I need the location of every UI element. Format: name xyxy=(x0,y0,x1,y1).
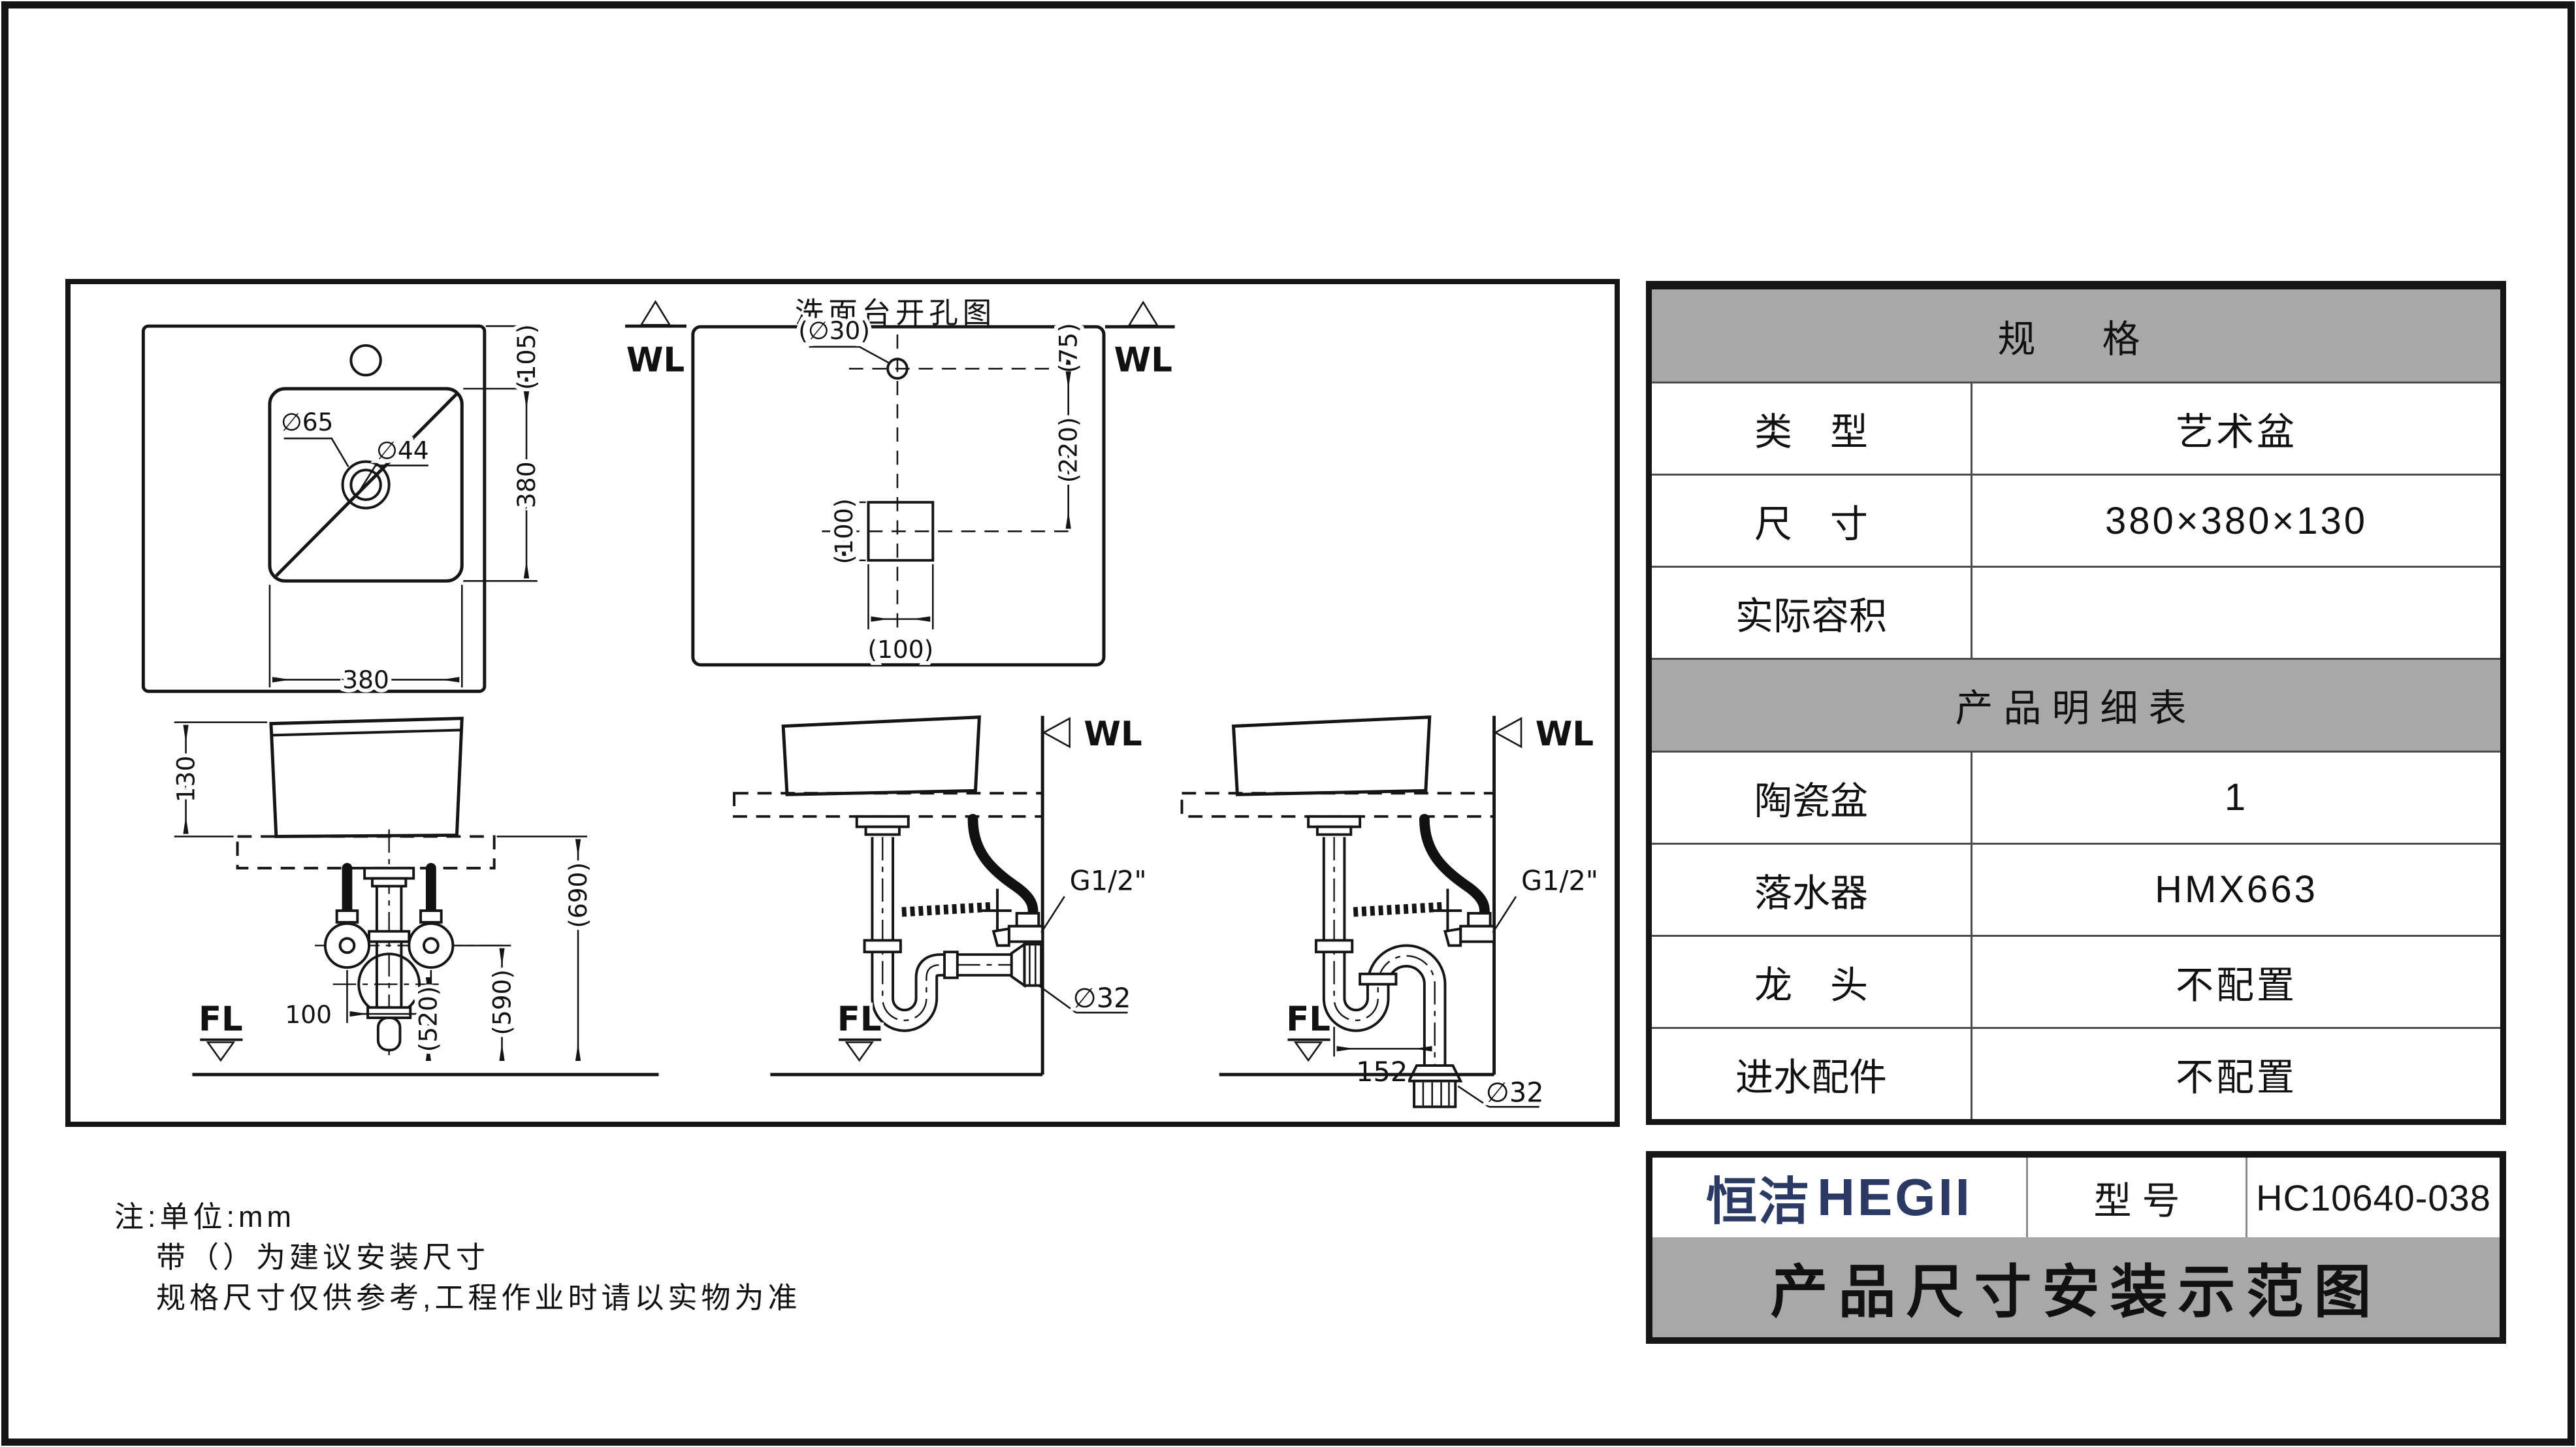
dim-basin-width-label: 380 xyxy=(342,665,389,694)
dim-offset-mid-label: (220) xyxy=(1054,417,1083,483)
dim-520-label: (520) xyxy=(414,986,443,1052)
drain-inner-dia-label: ∅44 xyxy=(376,436,428,465)
front-view-drawing: 130 xyxy=(171,719,658,1075)
dim-basin-height-label: 130 xyxy=(171,756,200,803)
wl-triangle-icon xyxy=(641,302,669,325)
fl-triangle-icon xyxy=(846,1043,873,1061)
wall-angle-valve xyxy=(1460,926,1494,942)
model-label: 型 号 xyxy=(2026,1158,2246,1237)
dim-cutout-height-label: (100) xyxy=(829,498,858,564)
wl-triangle-icon xyxy=(1129,302,1157,326)
angle-valve-right xyxy=(409,924,453,967)
wall-flange xyxy=(1012,944,1025,985)
floor-drain-wl-label: WL xyxy=(1536,715,1594,754)
installation-drawing-panel: WL ∅65 ∅44 (105) 380 xyxy=(65,279,1620,1127)
spec-row-value xyxy=(1971,566,2500,658)
fl-triangle-icon xyxy=(1295,1043,1321,1061)
spec-table-title: 规 格 xyxy=(1652,289,2500,382)
spec-row-label: 类 型 xyxy=(1652,382,1971,474)
detail-row-value: 1 xyxy=(1971,751,2500,843)
sheet-title: 产品尺寸安装示范图 xyxy=(1652,1237,2500,1337)
wall-drain-thread-label: G1/2" xyxy=(1070,864,1147,896)
wl-triangle-icon xyxy=(1044,719,1070,747)
spec-table: 规 格 类 型 艺术盆 尺 寸 380×380×130 实际容积 产品明细表 陶… xyxy=(1646,281,2506,1125)
spec-row-value: 380×380×130 xyxy=(1971,474,2500,566)
angle-valve-left xyxy=(325,924,369,967)
faucet-hole-dia-label: (∅30) xyxy=(798,316,870,345)
detail-row-label: 陶瓷盆 xyxy=(1652,751,1971,843)
dim-590-label: (590) xyxy=(487,969,516,1035)
dim-valve-span-label: 100 xyxy=(285,1000,332,1029)
spec-row-value: 艺术盆 xyxy=(1971,382,2500,474)
page: WL ∅65 ∅44 (105) 380 xyxy=(0,0,2576,1447)
detail-row-label: 落水器 xyxy=(1652,843,1971,935)
note-line-2: 带（）为建议安装尺寸 xyxy=(114,1237,1094,1278)
supply-hose xyxy=(973,819,1033,919)
dim-690-label: (690) xyxy=(564,862,592,928)
fl-triangle-icon xyxy=(208,1043,234,1061)
model-value: HC10640-038 xyxy=(2246,1158,2500,1237)
wall-drain-wl-label: WL xyxy=(1084,715,1142,754)
top-view-drawing: WL ∅65 ∅44 (105) 380 xyxy=(143,302,686,694)
spec-row-label: 实际容积 xyxy=(1652,566,1971,658)
drain-tailpiece xyxy=(378,1018,400,1050)
detail-table-title: 产品明细表 xyxy=(1652,658,2500,750)
faucet-hole xyxy=(351,346,380,375)
floor-drain-dia-label: ∅32 xyxy=(1486,1076,1544,1108)
pop-up-rod xyxy=(1353,907,1443,912)
dim-faucet-offset-label: (105) xyxy=(512,324,541,390)
detail-row-value: 不配置 xyxy=(1971,1027,2500,1119)
wall-drain-view-drawing: WL G1/2" xyxy=(734,715,1147,1075)
detail-row-label: 龙 头 xyxy=(1652,935,1971,1027)
dim-trap-offset-label: 152 xyxy=(1356,1056,1408,1088)
drain-outer-dia-label: ∅65 xyxy=(281,408,333,436)
floor-drain-view-drawing: WL G1/2" xyxy=(1182,715,1598,1108)
dim-cutout-width-label: (100) xyxy=(867,635,933,664)
hole-view-wl-label: WL xyxy=(1114,340,1172,380)
title-block: 恒洁 HEGII 型 号 HC10640-038 产品尺寸安装示范图 xyxy=(1646,1151,2506,1344)
wall-drain-dia-label: ∅32 xyxy=(1073,982,1131,1014)
dim-offset-top-label: (75) xyxy=(1054,323,1083,373)
detail-row-label: 进水配件 xyxy=(1652,1027,1971,1119)
wall-drain-fl-label: FL xyxy=(837,1000,882,1039)
dim-basin-depth-label: 380 xyxy=(512,461,541,508)
wall-angle-valve xyxy=(1009,926,1042,942)
wl-triangle-icon xyxy=(1496,719,1522,747)
counter-hole-drawing: 洗面台开孔图 WL (∅30) (100) (100) xyxy=(693,297,1175,664)
brand-logo-en: HEGII xyxy=(1817,1167,1972,1228)
detail-row-value: HMX663 xyxy=(1971,843,2500,935)
brand-logo-cn: 恒洁 xyxy=(1706,1161,1811,1234)
detail-row-value: 不配置 xyxy=(1971,935,2500,1027)
brand-logo: 恒洁 HEGII xyxy=(1652,1158,2026,1237)
notes: 注:单位:mm 带（）为建议安装尺寸 规格尺寸仅供参考,工程作业时请以实物为准 xyxy=(114,1197,1094,1318)
floor-drain-fl-label: FL xyxy=(1286,1000,1330,1039)
note-line-3: 规格尺寸仅供参考,工程作业时请以实物为准 xyxy=(114,1278,1094,1318)
spec-row-label: 尺 寸 xyxy=(1652,474,1971,566)
floor-drain-thread-label: G1/2" xyxy=(1521,864,1598,896)
note-line-1: 注:单位:mm xyxy=(114,1197,1094,1237)
supply-hose xyxy=(1425,819,1485,919)
pop-up-rod xyxy=(902,907,993,912)
installation-drawing: WL ∅65 ∅44 (105) 380 xyxy=(71,284,1615,1122)
top-view-wl-label: WL xyxy=(626,340,684,380)
front-view-fl-label: FL xyxy=(199,1000,243,1039)
